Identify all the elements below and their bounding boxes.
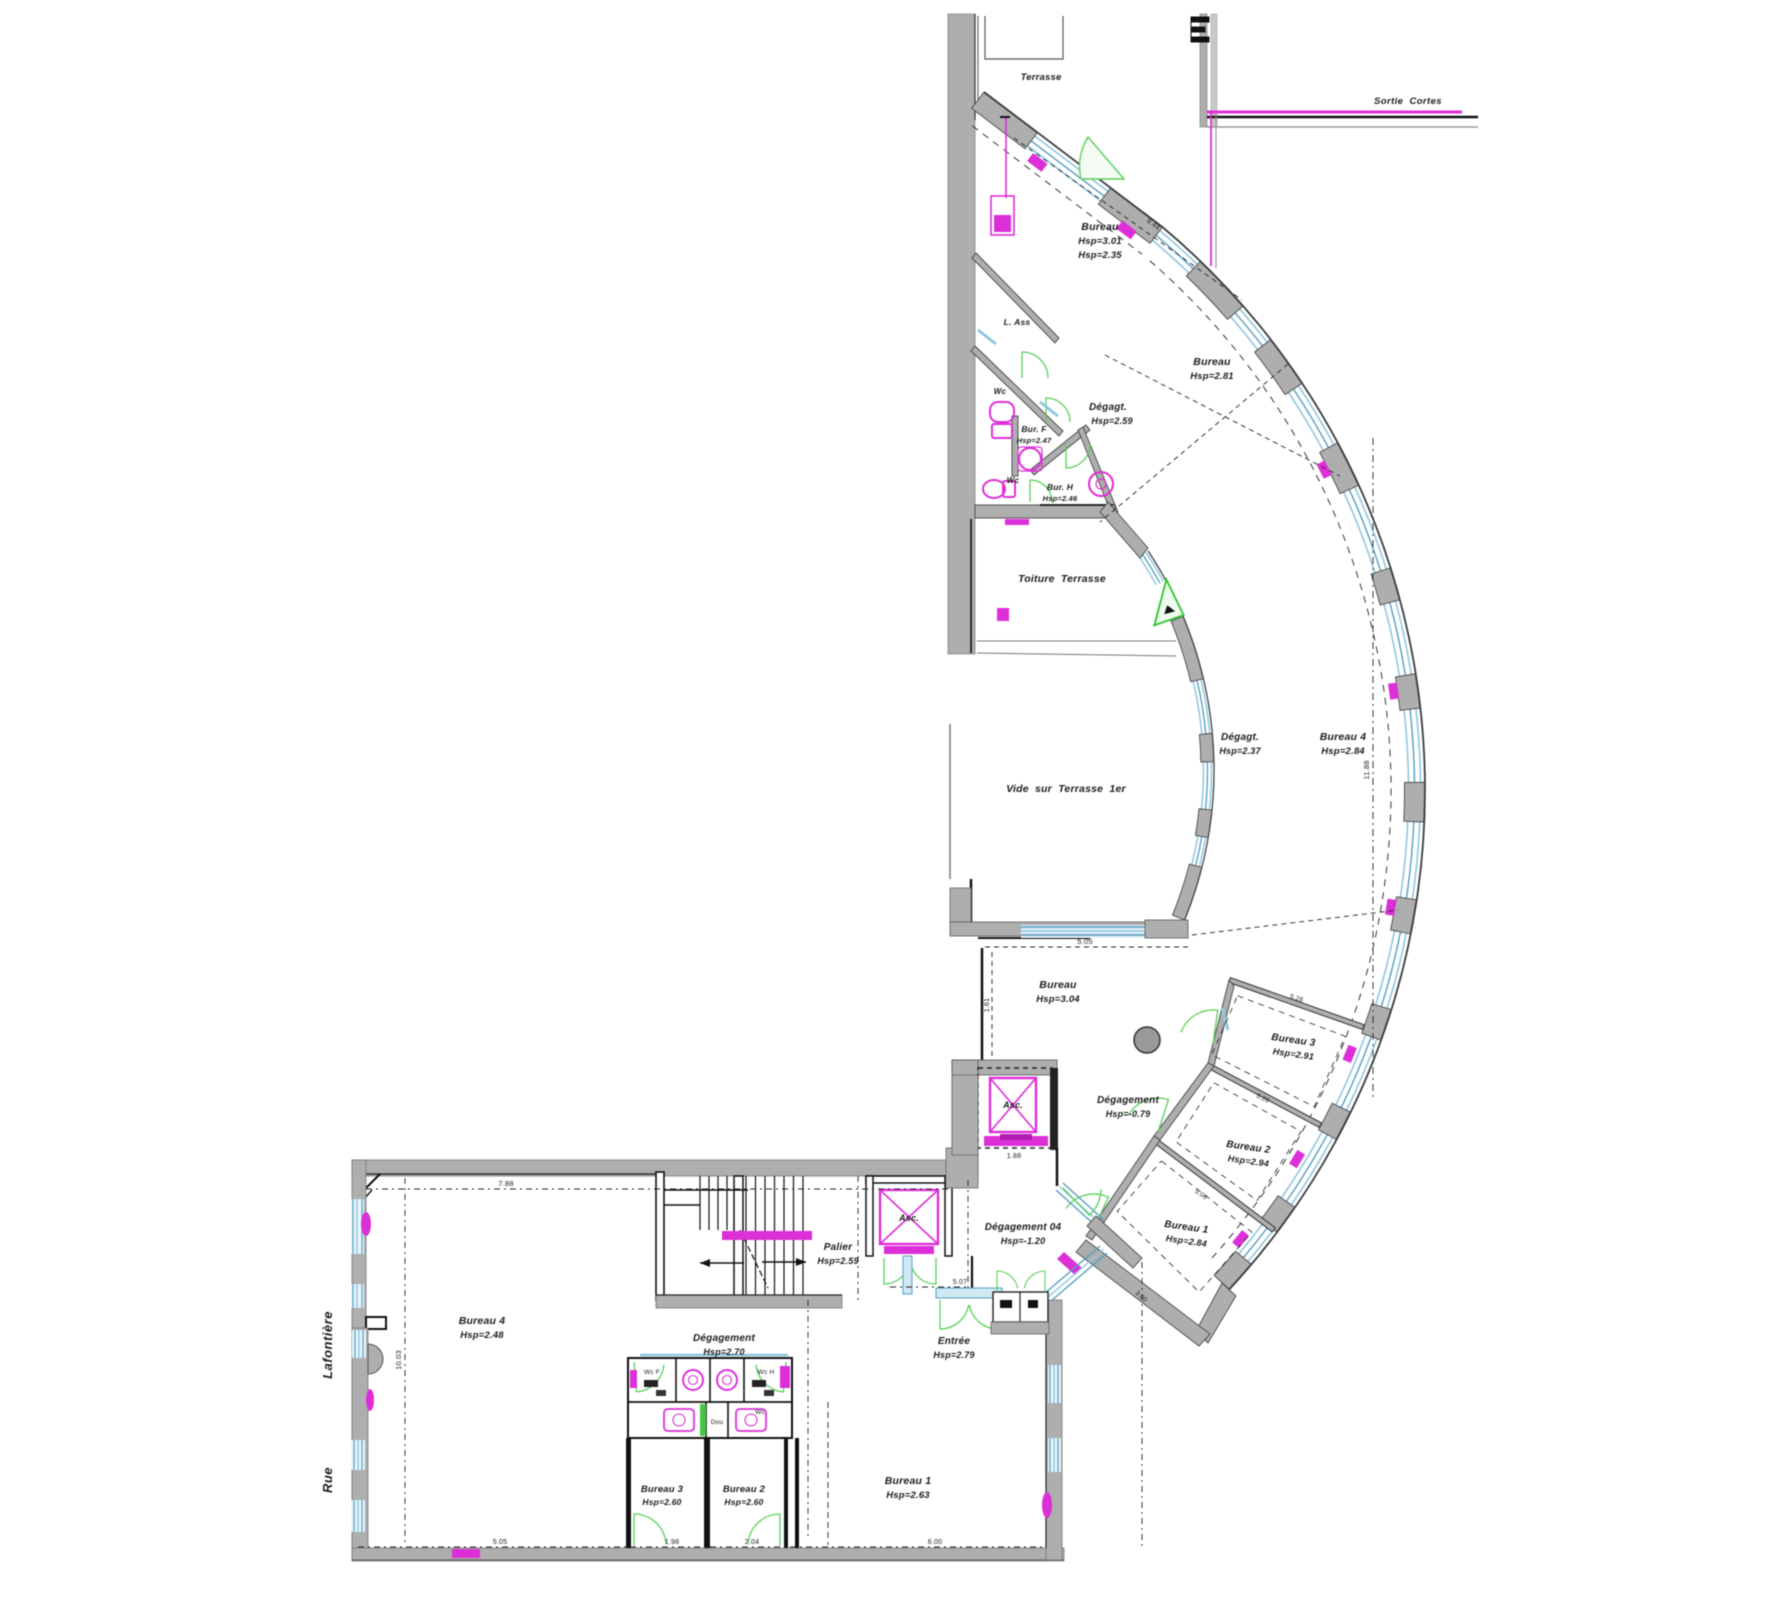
svg-text:Bureau 3: Bureau 3 [641, 1484, 684, 1495]
svg-text:Hsp=3.04: Hsp=3.04 [1036, 994, 1080, 1005]
svg-text:Rue: Rue [320, 1467, 335, 1493]
svg-text:Hsp=2.79: Hsp=2.79 [933, 1350, 974, 1360]
svg-text:1.88: 1.88 [1007, 1153, 1021, 1160]
svg-text:7.88: 7.88 [498, 1179, 513, 1188]
svg-text:Terrasse: Terrasse [1021, 72, 1062, 83]
svg-text:Wc: Wc [994, 387, 1007, 396]
svg-text:Dégagt.: Dégagt. [1089, 402, 1127, 413]
svg-text:Dou: Dou [711, 1419, 724, 1426]
svg-text:L. Ass: L. Ass [1004, 317, 1031, 327]
svg-text:Wc: Wc [755, 1409, 765, 1416]
svg-text:Bureau: Bureau [1081, 221, 1119, 233]
svg-text:Bureau 4: Bureau 4 [459, 1315, 506, 1327]
svg-text:Hsp=2.59: Hsp=2.59 [817, 1256, 858, 1266]
svg-text:Dégagement: Dégagement [1097, 1095, 1159, 1106]
svg-text:Wc F: Wc F [644, 1369, 660, 1376]
svg-text:Bur. F: Bur. F [1021, 424, 1047, 434]
svg-text:Palier: Palier [824, 1242, 853, 1253]
svg-text:Dégagt.: Dégagt. [1221, 732, 1259, 743]
svg-text:Hsp=2.60: Hsp=2.60 [724, 1497, 763, 1507]
svg-text:1.61: 1.61 [984, 998, 991, 1012]
svg-text:Bureau: Bureau [1193, 356, 1231, 368]
svg-text:11.88: 11.88 [1362, 760, 1371, 779]
svg-text:10.03: 10.03 [394, 1350, 403, 1370]
svg-text:Hsp=2.60: Hsp=2.60 [642, 1497, 681, 1507]
svg-text:Hsp=-1.20: Hsp=-1.20 [1001, 1236, 1046, 1246]
svg-text:Hsp=2.35: Hsp=2.35 [1078, 250, 1122, 261]
svg-text:5.05: 5.05 [1077, 937, 1092, 946]
svg-text:Bureau: Bureau [1039, 979, 1077, 991]
svg-text:Entrée: Entrée [938, 1336, 971, 1347]
svg-text:Asc.: Asc. [1002, 1100, 1023, 1110]
svg-text:Bureau 2: Bureau 2 [723, 1484, 766, 1495]
svg-text:Bur. H: Bur. H [1047, 482, 1074, 492]
svg-text:Dégagement 04: Dégagement 04 [985, 1222, 1062, 1233]
svg-text:Toiture Terrasse: Toiture Terrasse [1018, 573, 1106, 585]
svg-text:Hsp=2.63: Hsp=2.63 [886, 1490, 930, 1501]
svg-text:Hsp=2.70: Hsp=2.70 [703, 1347, 744, 1357]
svg-text:Wc H: Wc H [758, 1369, 775, 1376]
svg-text:Lafontière: Lafontière [320, 1311, 335, 1379]
svg-text:Hsp=2.81: Hsp=2.81 [1190, 371, 1234, 382]
svg-text:Hsp=2.48: Hsp=2.48 [460, 1330, 504, 1341]
svg-text:Vide sur Terrasse 1er: Vide sur Terrasse 1er [1006, 783, 1126, 795]
svg-text:Hsp=2.37: Hsp=2.37 [1219, 746, 1261, 756]
svg-text:Hsp=2.47: Hsp=2.47 [1017, 436, 1052, 445]
svg-text:2.04: 2.04 [745, 1539, 759, 1546]
svg-text:Hsp=3.01: Hsp=3.01 [1078, 236, 1122, 247]
svg-text:Wc: Wc [1007, 476, 1020, 485]
svg-text:Hsp=2.84: Hsp=2.84 [1321, 746, 1365, 757]
svg-text:Hsp=-0.79: Hsp=-0.79 [1106, 1109, 1151, 1119]
svg-text:5.05: 5.05 [493, 1539, 507, 1546]
svg-text:1.98: 1.98 [665, 1539, 679, 1546]
svg-text:Bureau 1: Bureau 1 [885, 1475, 932, 1487]
svg-text:Hsp=2.59: Hsp=2.59 [1091, 416, 1132, 426]
svg-text:Sortie Cortes: Sortie Cortes [1374, 96, 1442, 107]
svg-text:Hsp=2.46: Hsp=2.46 [1043, 494, 1078, 503]
svg-text:Dégagement: Dégagement [693, 1333, 755, 1344]
svg-text:Bureau 4: Bureau 4 [1320, 731, 1367, 743]
svg-text:6.00: 6.00 [928, 1539, 942, 1546]
svg-text:5.07: 5.07 [953, 1279, 967, 1286]
svg-text:Asc.: Asc. [898, 1213, 919, 1223]
